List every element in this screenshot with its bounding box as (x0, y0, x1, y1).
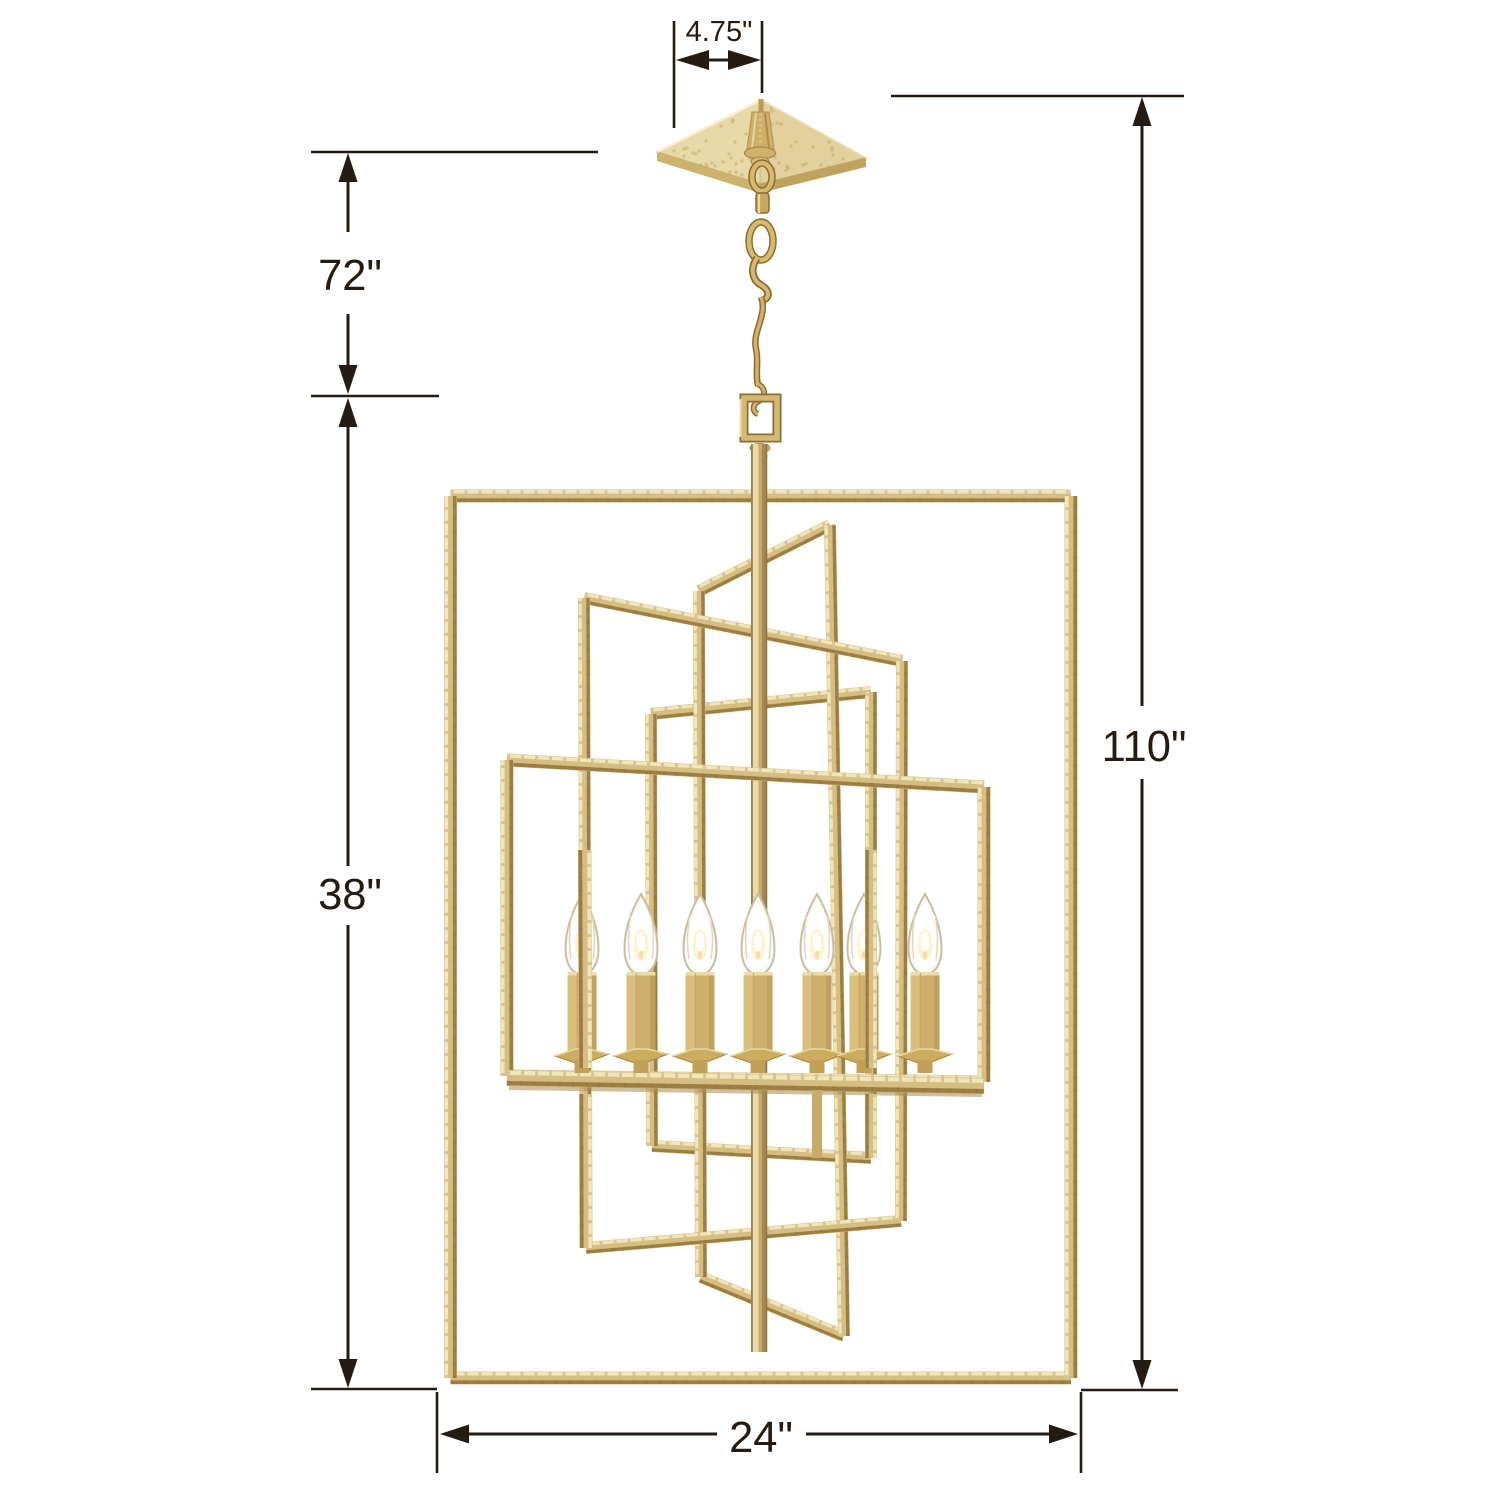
svg-text:110": 110" (1102, 723, 1187, 771)
svg-text:4.75": 4.75" (686, 16, 753, 48)
svg-text:72": 72" (318, 252, 382, 300)
svg-text:38": 38" (318, 871, 382, 919)
svg-text:24": 24" (729, 1414, 793, 1462)
